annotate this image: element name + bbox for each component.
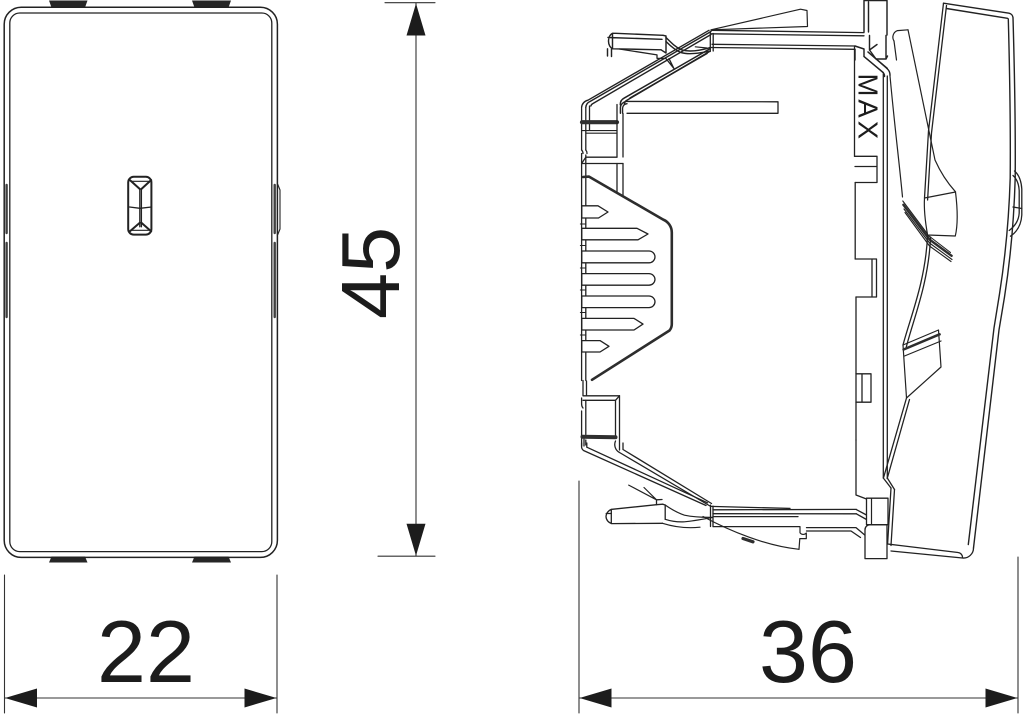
svg-text:MAX: MAX bbox=[853, 74, 884, 143]
svg-text:36: 36 bbox=[759, 602, 857, 701]
svg-text:22: 22 bbox=[97, 602, 195, 701]
svg-text:45: 45 bbox=[324, 227, 417, 319]
